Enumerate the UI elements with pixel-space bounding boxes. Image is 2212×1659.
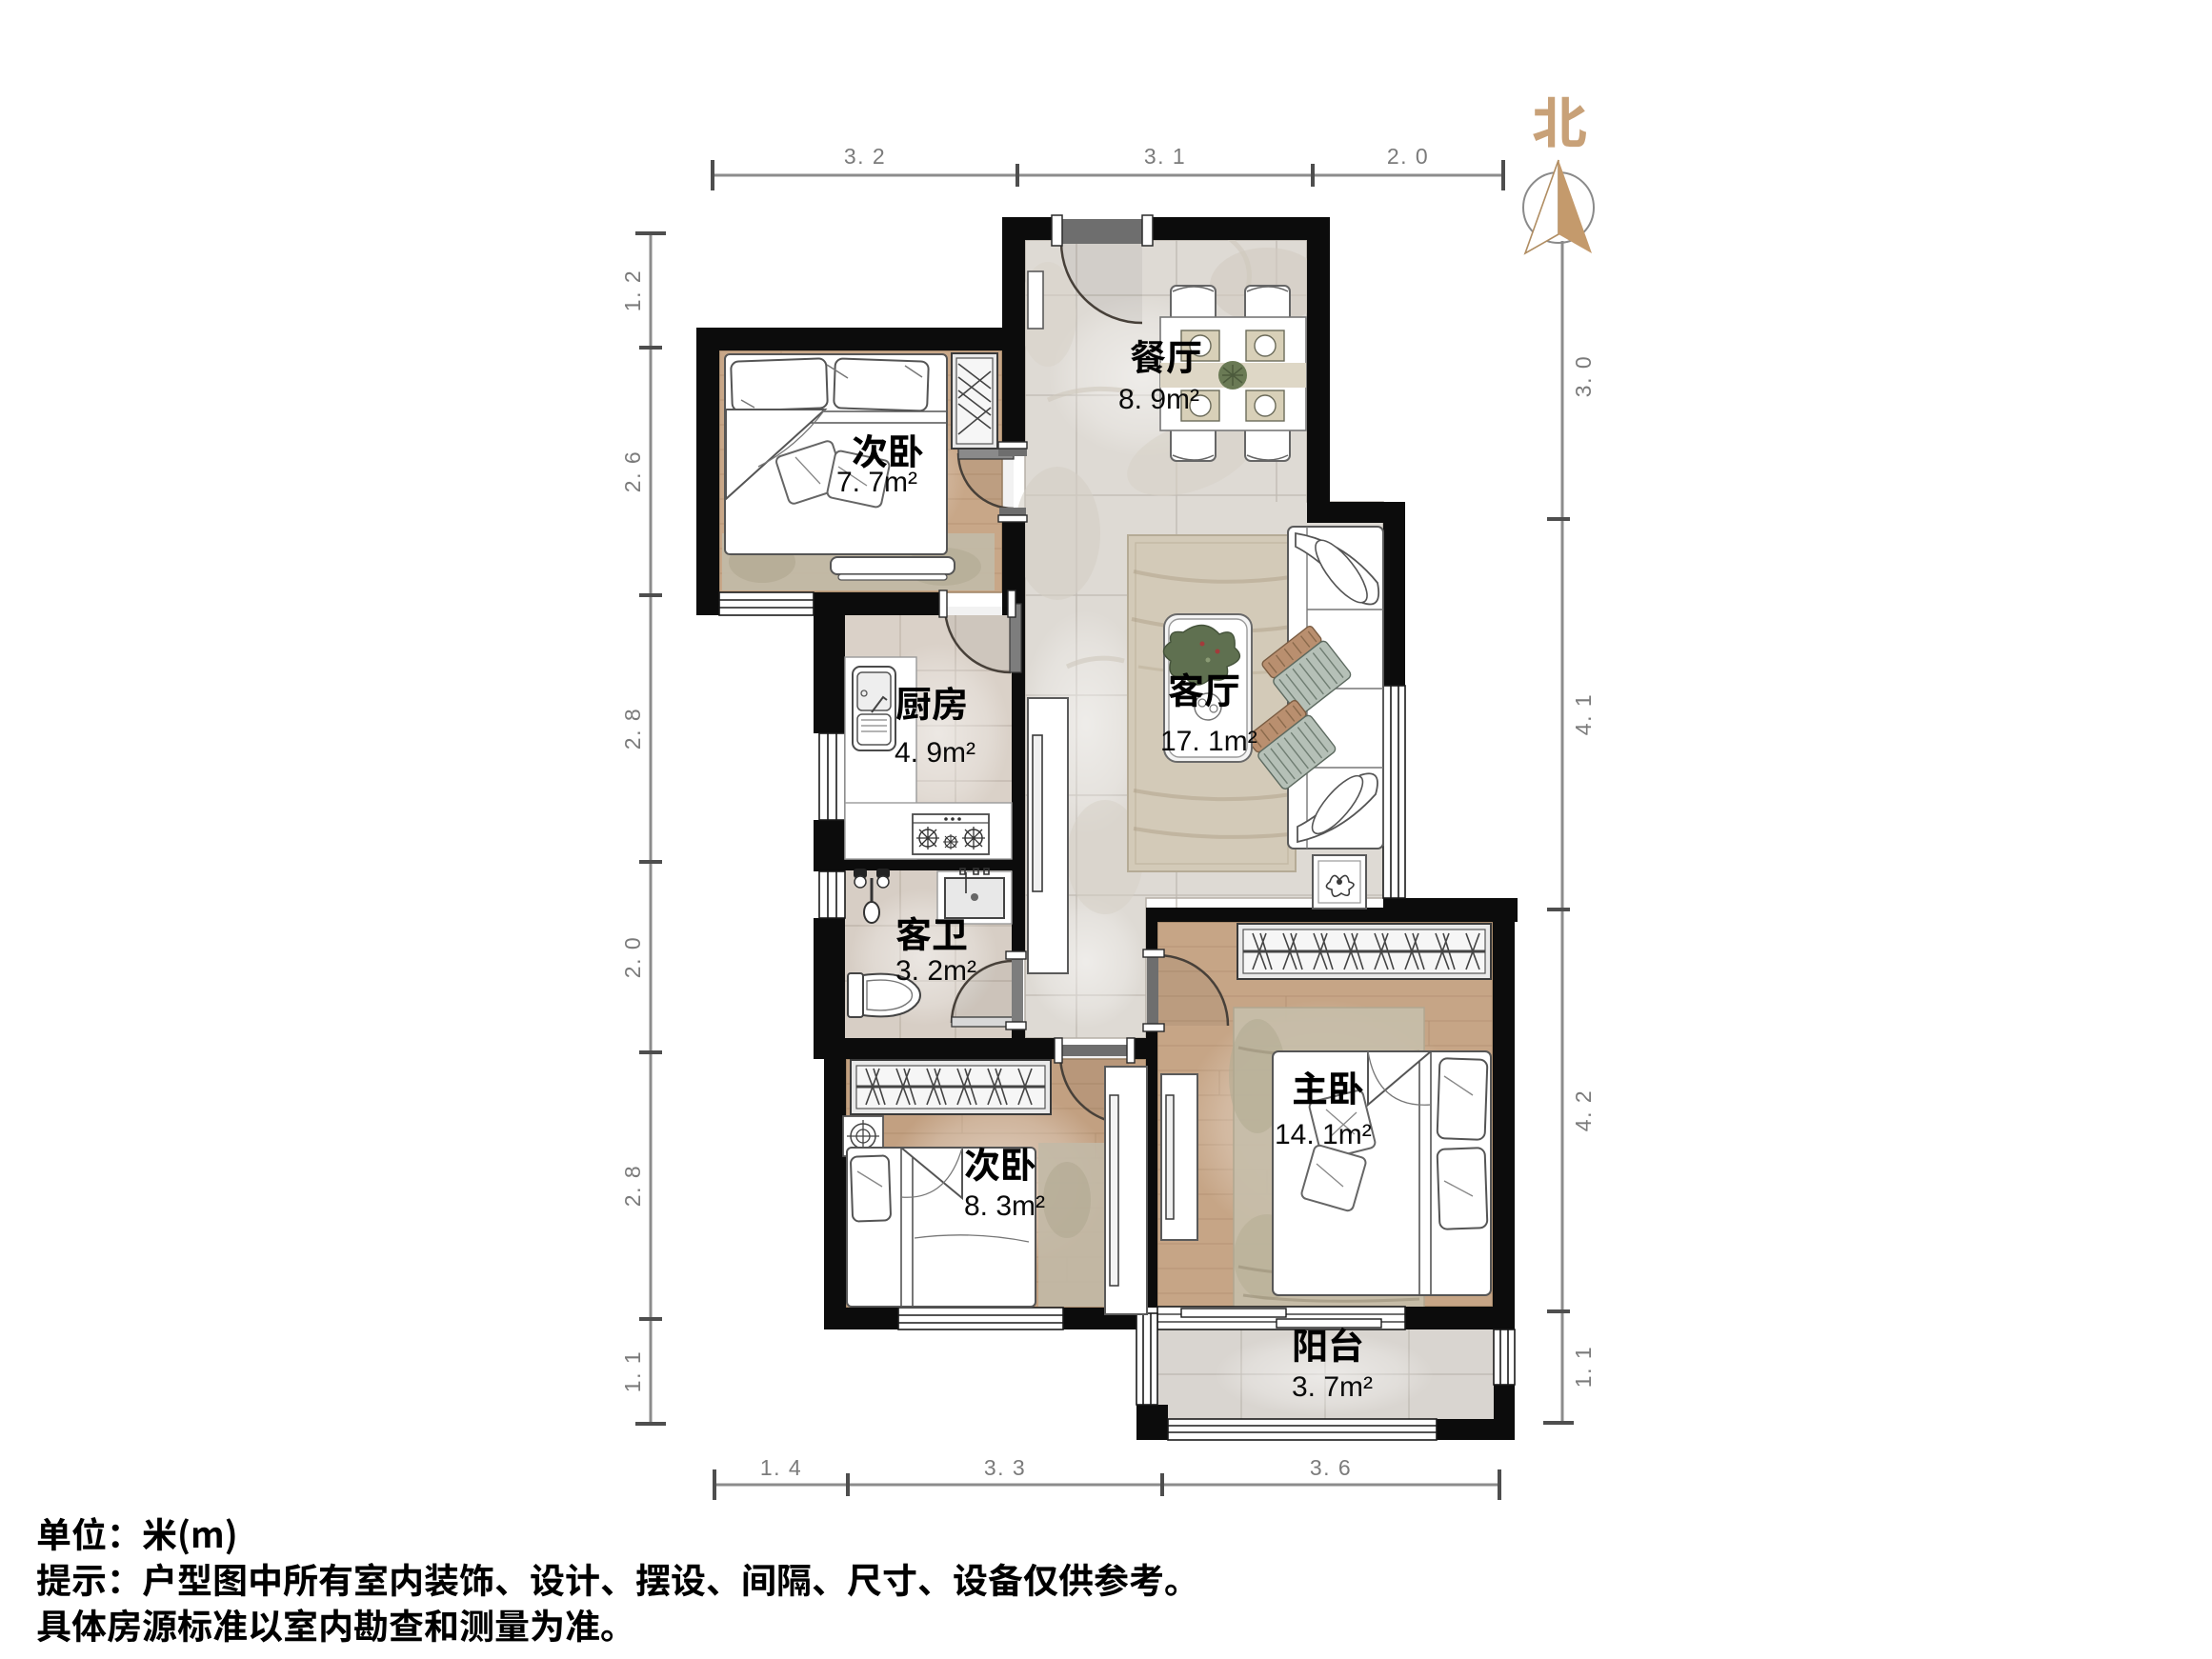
svg-text:8. 3m²: 8. 3m² xyxy=(964,1190,1045,1222)
svg-text:3. 6: 3. 6 xyxy=(1310,1455,1352,1480)
svg-text:2. 0: 2. 0 xyxy=(1387,144,1429,169)
svg-text:4. 2: 4. 2 xyxy=(1571,1089,1596,1131)
svg-text:3. 7m²: 3. 7m² xyxy=(1292,1371,1373,1403)
svg-text:17. 1m²: 17. 1m² xyxy=(1160,726,1257,757)
svg-text:1. 2: 1. 2 xyxy=(620,270,645,311)
svg-text:1. 1: 1. 1 xyxy=(620,1350,645,1392)
svg-text:3. 2m²: 3. 2m² xyxy=(895,955,976,987)
svg-text:14. 1m²: 14. 1m² xyxy=(1275,1119,1372,1150)
svg-text:3. 0: 3. 0 xyxy=(1571,355,1596,397)
svg-text:2. 0: 2. 0 xyxy=(620,936,645,978)
svg-text:3. 1: 3. 1 xyxy=(1144,144,1186,169)
svg-text:7. 7m²: 7. 7m² xyxy=(836,467,917,498)
svg-text:2. 6: 2. 6 xyxy=(620,450,645,492)
svg-text:1. 1: 1. 1 xyxy=(1571,1346,1596,1388)
svg-text:1. 4: 1. 4 xyxy=(760,1455,802,1480)
svg-text:2. 8: 2. 8 xyxy=(620,1165,645,1207)
svg-text:4. 9m²: 4. 9m² xyxy=(895,737,975,769)
svg-text:3. 2: 3. 2 xyxy=(844,144,886,169)
svg-text:3. 3: 3. 3 xyxy=(984,1455,1026,1480)
svg-text:2. 8: 2. 8 xyxy=(620,708,645,750)
svg-text:8. 9m²: 8. 9m² xyxy=(1118,384,1199,415)
svg-text:4. 1: 4. 1 xyxy=(1571,693,1596,735)
